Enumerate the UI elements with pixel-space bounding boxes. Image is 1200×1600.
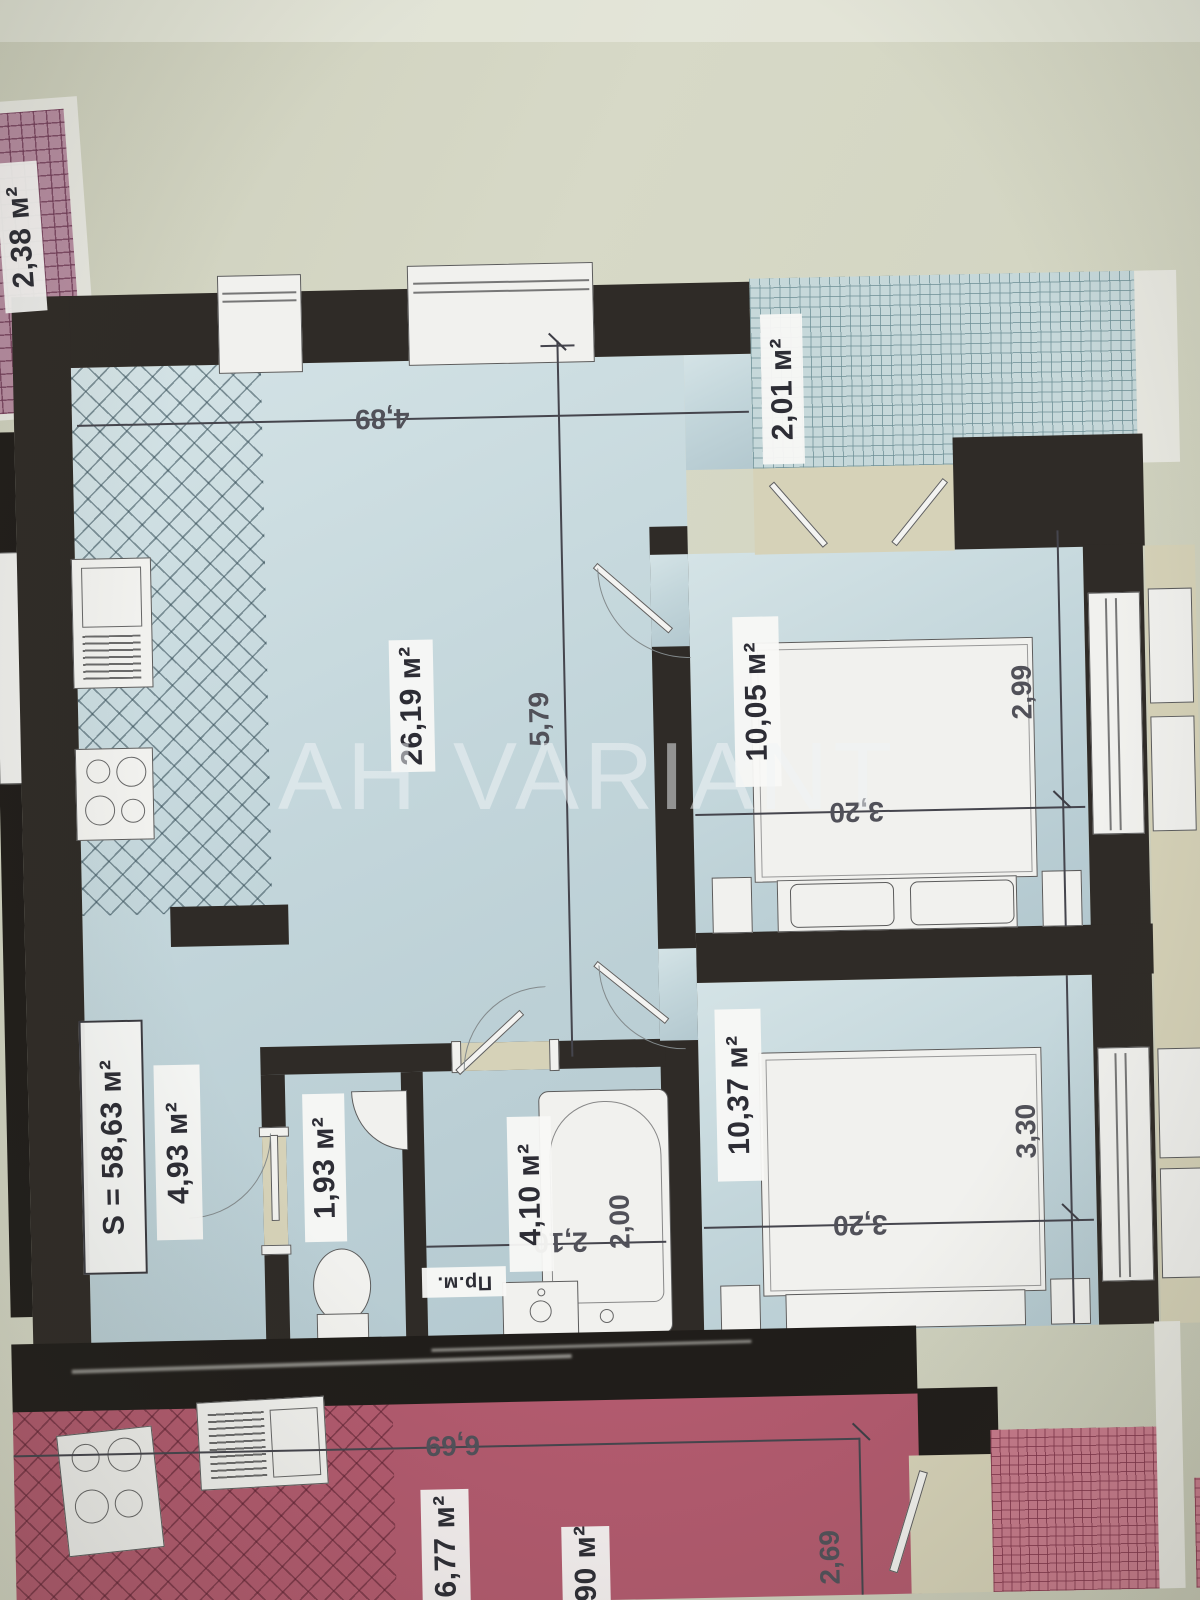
dim-bathtub-length: 2,00	[596, 1165, 644, 1278]
window-top-large	[407, 262, 595, 366]
right-margin-window-2	[1150, 716, 1196, 832]
bed-bottom-headboard	[785, 1289, 1026, 1330]
area-label-neighbor-b: 90 м²	[561, 1526, 611, 1600]
neighbor-stove	[56, 1426, 165, 1558]
area-label-neighbor-a: 6,77 м²	[420, 1489, 470, 1600]
dim-bed1-height: 2,99	[996, 603, 1048, 782]
washing-machine-label: Пр.м.	[422, 1266, 507, 1298]
area-label-bedroom-bottom: 10,37 м²	[714, 1009, 764, 1182]
area-label-wc: 1,93 м²	[302, 1093, 347, 1242]
wall-top-right-block	[952, 434, 1144, 550]
kitchen-unit	[71, 557, 154, 689]
wall-top	[59, 282, 750, 368]
pillow	[790, 882, 895, 928]
nightstand	[1042, 870, 1083, 927]
wall-stub-living	[170, 905, 289, 947]
wall-between-bedrooms	[696, 923, 1154, 983]
door-jamb	[549, 1039, 560, 1071]
dim-neighbor-width: 6,69	[395, 1419, 511, 1471]
dim-bed2-width: 3,20	[803, 1198, 916, 1250]
nightstand	[720, 1285, 761, 1332]
dim-neighbor-height: 2,69	[805, 1519, 855, 1596]
right-margin-window-1	[1148, 588, 1194, 704]
total-area-label: S = 58,63 м²	[79, 1020, 148, 1275]
area-label-hallway: 4,93 м²	[153, 1064, 203, 1240]
window-right-top	[1088, 592, 1145, 835]
neighbor-balcony-bottom	[990, 1426, 1161, 1591]
window-top-small	[217, 274, 303, 374]
dim-bed2-height: 3,30	[1000, 1043, 1052, 1219]
dim-living-width: 4,89	[316, 393, 447, 444]
area-label-bathroom: 4,10 м²	[507, 1116, 554, 1272]
photo-light-band	[0, 0, 1200, 42]
neighbor-balcony-corner	[1194, 1477, 1200, 1587]
nightstand	[712, 877, 753, 934]
stove	[75, 747, 155, 841]
window-right-bottom	[1097, 1047, 1154, 1282]
door-jamb	[261, 1245, 291, 1256]
pillow	[910, 879, 1015, 925]
area-label-balcony-right: 2,01 м²	[760, 314, 805, 465]
floorplan-photo: 2,38 м²	[0, 0, 1200, 1600]
washing-machine	[502, 1281, 579, 1341]
right-margin-window-4	[1160, 1167, 1200, 1278]
nightstand	[1050, 1278, 1091, 1325]
toilet-tank	[317, 1313, 370, 1340]
page-edge-strip	[1154, 1321, 1186, 1588]
neighbor-sink-unit	[196, 1396, 329, 1491]
agency-watermark: АН VARIANT	[278, 722, 897, 832]
right-margin-window-3	[1157, 1047, 1200, 1158]
